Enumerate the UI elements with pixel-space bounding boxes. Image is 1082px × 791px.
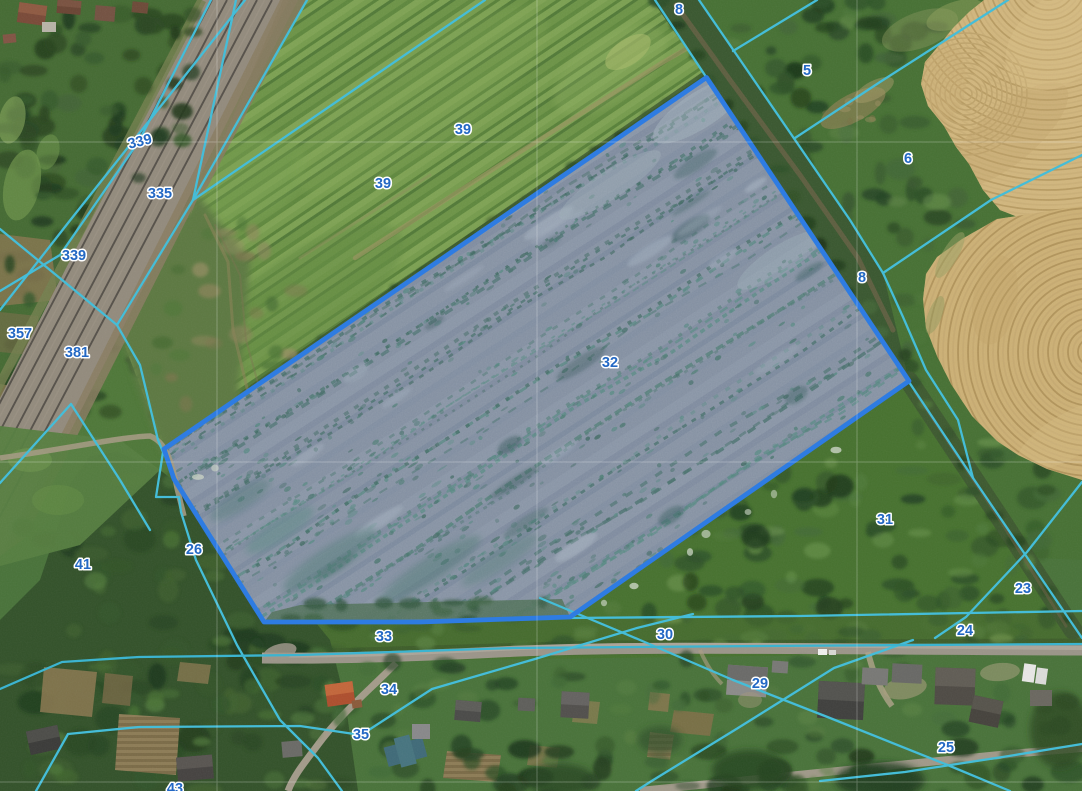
svg-text:29: 29 [752,676,768,692]
svg-text:24: 24 [957,623,973,639]
svg-text:43: 43 [167,781,183,791]
svg-text:41: 41 [75,557,91,573]
svg-text:25: 25 [938,740,954,756]
svg-text:8: 8 [675,2,683,18]
svg-text:30: 30 [657,627,673,643]
svg-text:34: 34 [381,682,397,698]
svg-text:357: 357 [8,326,32,342]
svg-text:33: 33 [376,629,392,645]
svg-text:31: 31 [877,512,893,528]
svg-text:32: 32 [602,355,618,371]
svg-text:381: 381 [65,345,89,361]
svg-text:26: 26 [186,542,202,558]
svg-text:8: 8 [858,270,866,286]
svg-text:39: 39 [375,176,391,192]
svg-text:6: 6 [904,151,912,167]
svg-text:39: 39 [455,122,471,138]
svg-text:23: 23 [1015,581,1031,597]
svg-text:5: 5 [803,63,811,79]
svg-text:339: 339 [62,248,86,264]
svg-text:335: 335 [148,186,172,202]
svg-text:35: 35 [353,727,369,743]
